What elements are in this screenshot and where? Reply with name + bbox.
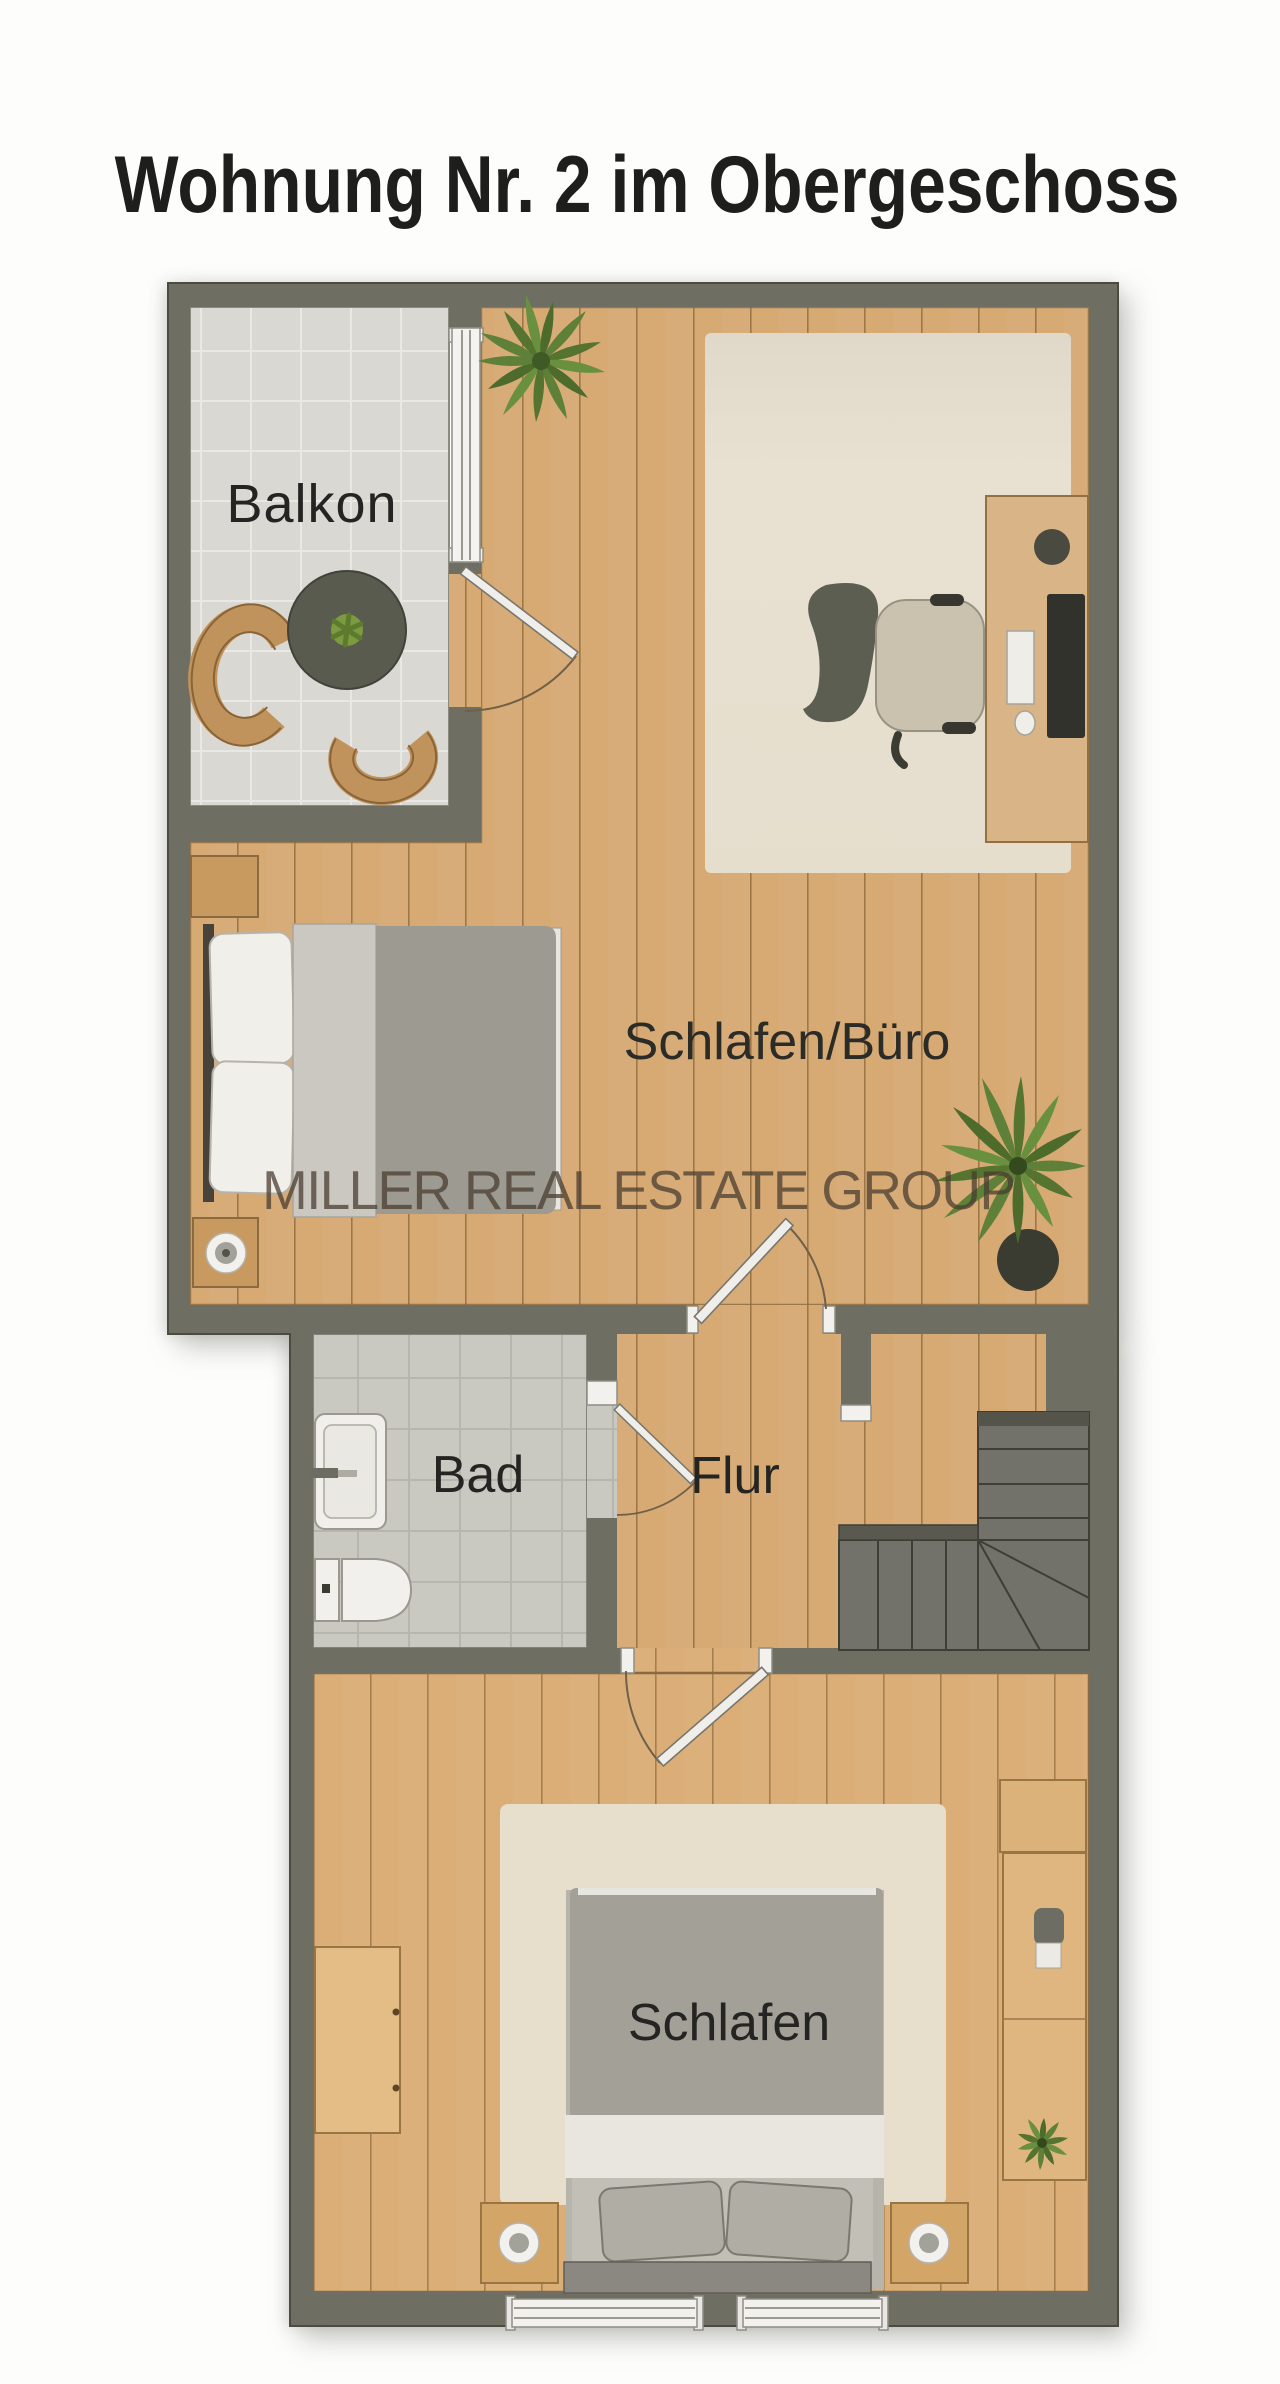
svg-text:Schlafen: Schlafen xyxy=(628,1994,830,2052)
svg-text:Bad: Bad xyxy=(432,1446,525,1504)
svg-text:Flur: Flur xyxy=(690,1447,780,1505)
svg-text:Schlafen/Büro: Schlafen/Büro xyxy=(624,1013,951,1071)
svg-text:Balkon: Balkon xyxy=(226,474,397,534)
